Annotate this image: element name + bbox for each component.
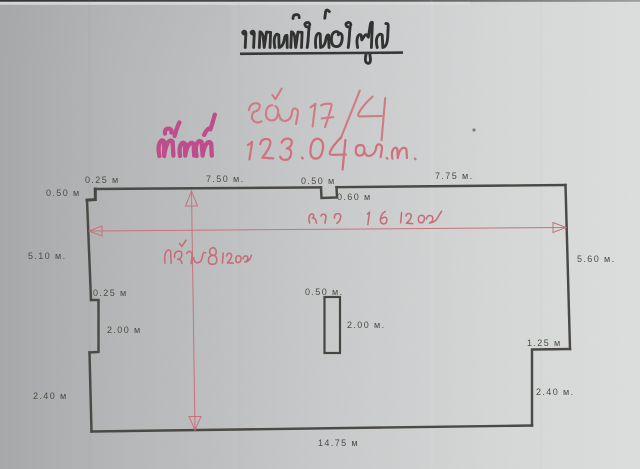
svg-text:2.40 м: 2.40 м (33, 391, 68, 401)
svg-text:2.40 м.: 2.40 м. (536, 387, 575, 397)
svg-text:0.25 м: 0.25 м (85, 175, 120, 185)
svg-text:5.10 м.: 5.10 м. (28, 251, 67, 261)
svg-text:1.25 м: 1.25 м (527, 338, 562, 348)
svg-text:0.50 м.: 0.50 м. (305, 287, 344, 297)
svg-text:0.50 м: 0.50 м (46, 188, 81, 198)
svg-text:7.75 м.: 7.75 м. (435, 171, 474, 181)
svg-text:2.00 м: 2.00 м (107, 325, 142, 335)
svg-text:14.75 м: 14.75 м (318, 438, 359, 448)
svg-text:0.50 м: 0.50 м (301, 176, 336, 186)
svg-text:2.00 м.: 2.00 м. (347, 320, 386, 330)
svg-text:0.60 м: 0.60 м (337, 192, 372, 202)
svg-text:5.60 м.: 5.60 м. (577, 254, 616, 264)
svg-text:0.25 м: 0.25 м (93, 288, 128, 298)
svg-text:7.50 м.: 7.50 м. (206, 174, 245, 184)
